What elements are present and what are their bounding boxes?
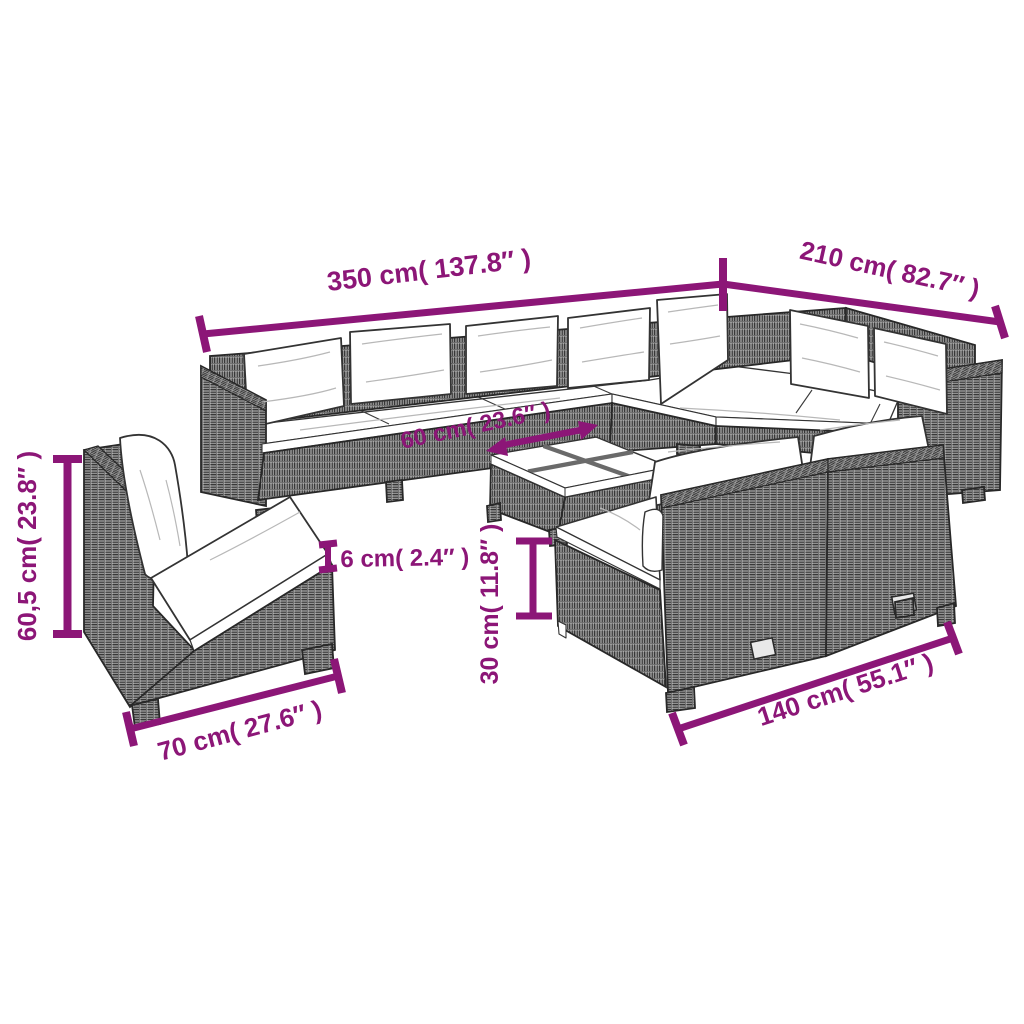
svg-text:6 cm( 2.4″ ): 6 cm( 2.4″ ): [340, 544, 469, 573]
svg-text:60,5 cm( 23.8″ ): 60,5 cm( 23.8″ ): [12, 451, 42, 641]
svg-text:30 cm( 11.8″ ): 30 cm( 11.8″ ): [476, 524, 504, 685]
